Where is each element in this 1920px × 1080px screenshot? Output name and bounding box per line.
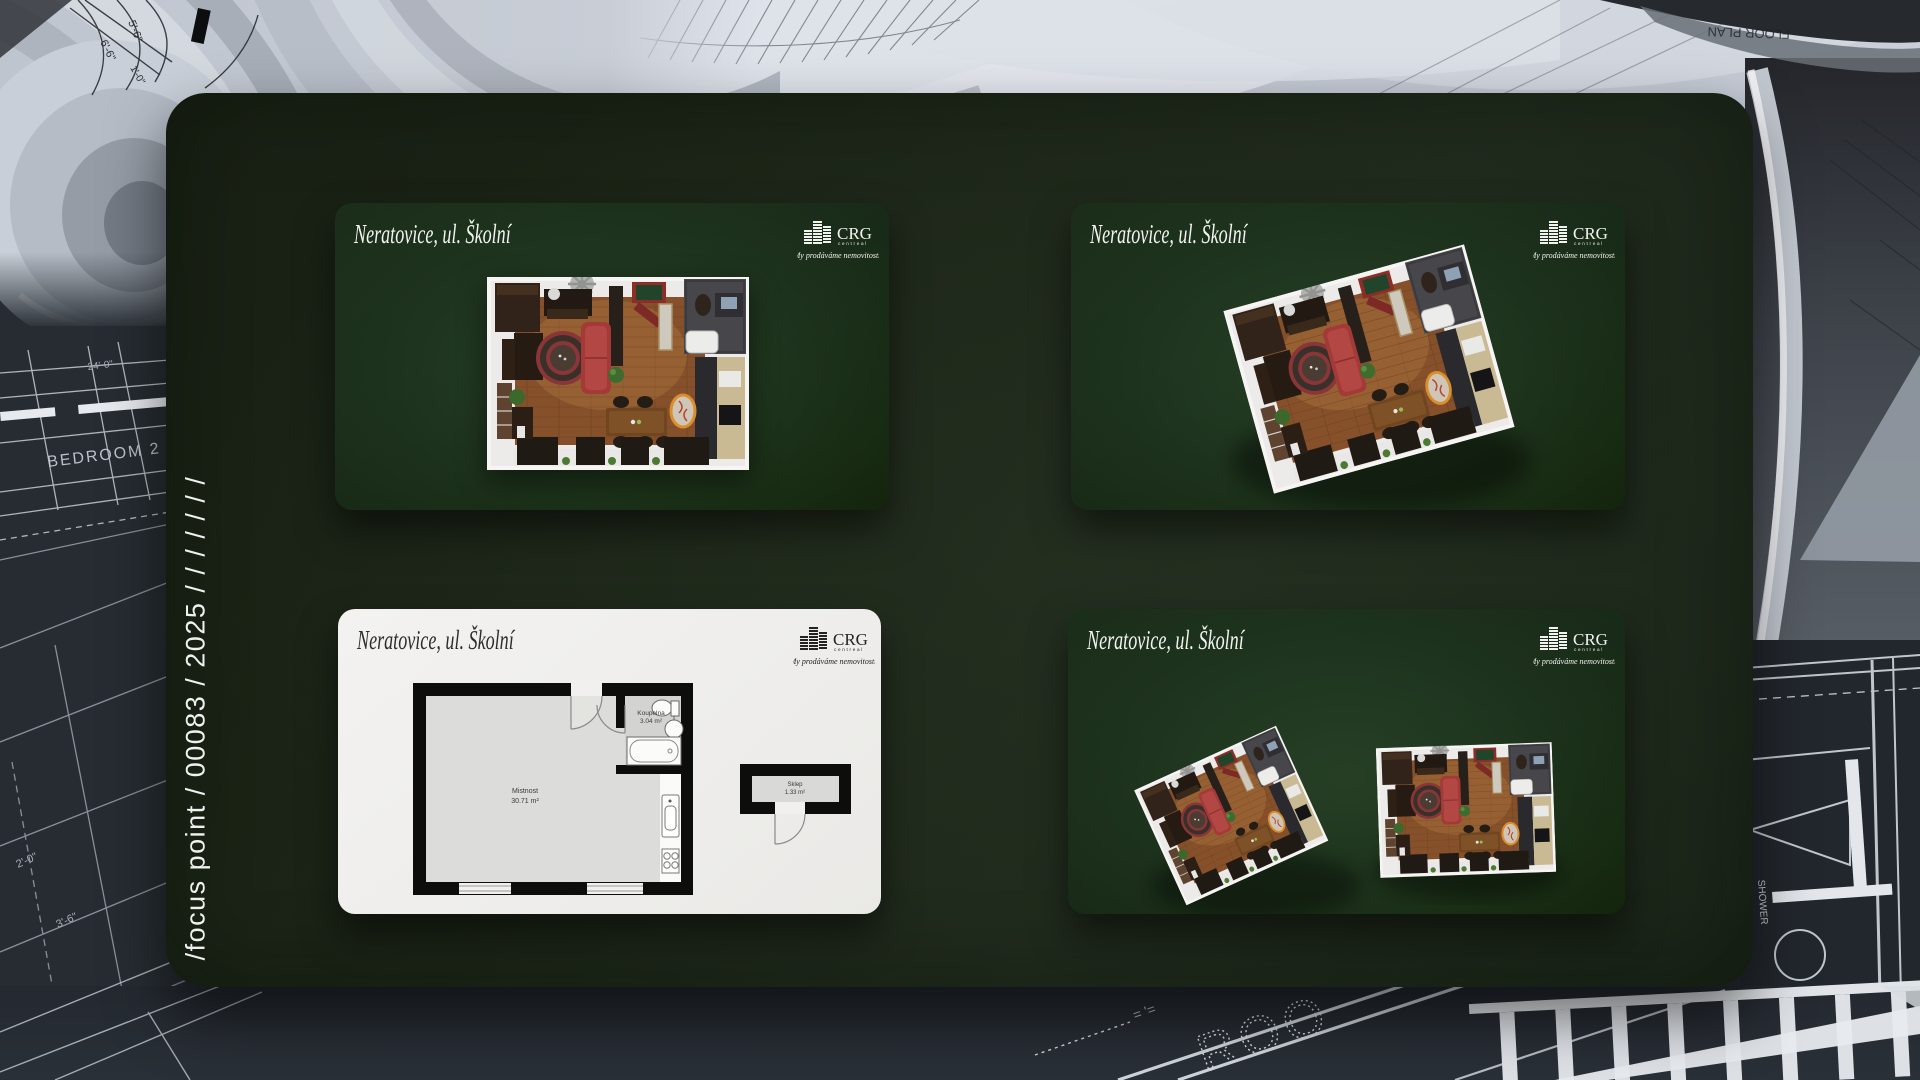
svg-text:3.04 m²: 3.04 m² bbox=[640, 718, 663, 725]
svg-text:30.71 m²: 30.71 m² bbox=[511, 798, 539, 805]
svg-text:FLOOR PLAN: FLOOR PLAN bbox=[1707, 24, 1790, 42]
svg-text:Mistnost: Mistnost bbox=[512, 788, 538, 795]
svg-text:Sklep: Sklep bbox=[787, 782, 803, 788]
svg-text:centreal: centreal bbox=[838, 241, 868, 246]
svg-text:My prodáváme nemovitosti: My prodáváme nemovitosti bbox=[797, 251, 879, 260]
svg-text:Koupelna: Koupelna bbox=[637, 710, 665, 717]
svg-text:1.33 m²: 1.33 m² bbox=[785, 790, 805, 796]
